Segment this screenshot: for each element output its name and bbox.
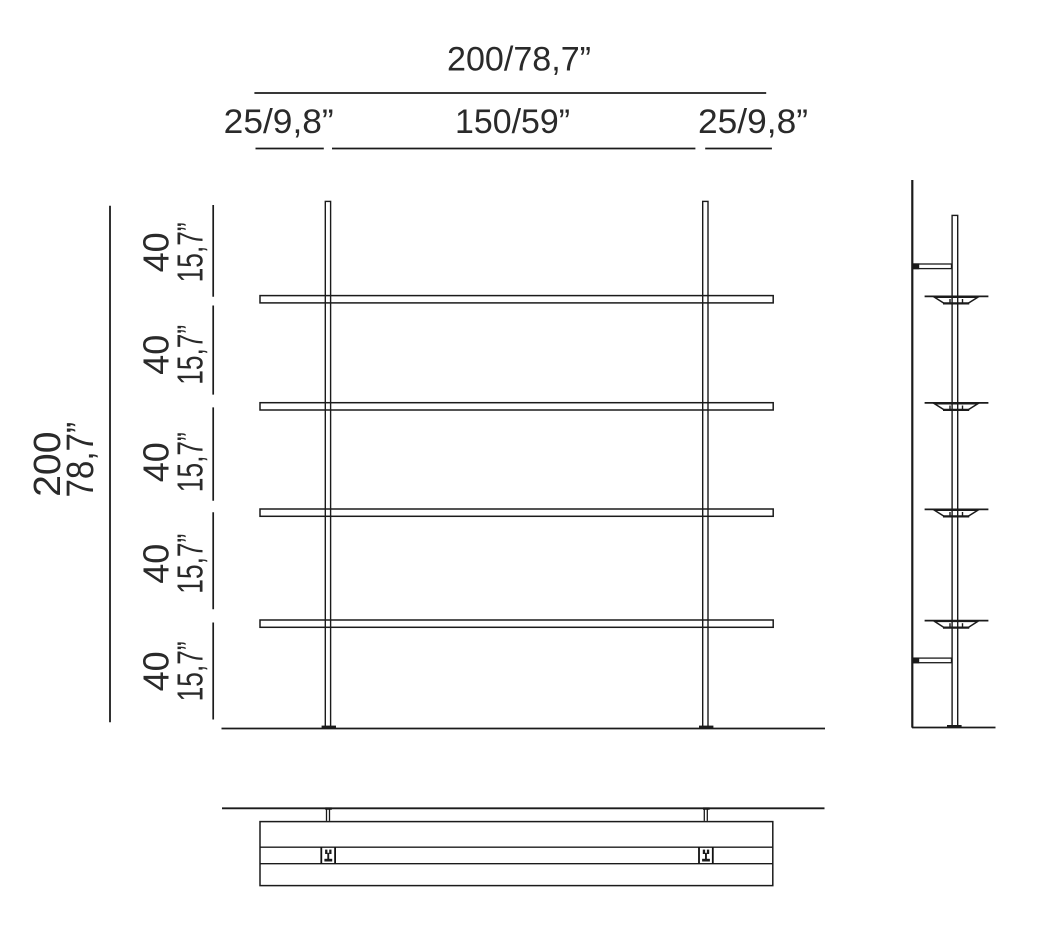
svg-text:15,7”: 15,7” [169,534,210,594]
svg-text:15,7”: 15,7” [169,325,210,385]
svg-text:25/9,8”: 25/9,8” [698,103,808,141]
svg-text:15,7”: 15,7” [169,432,210,492]
svg-text:150/59”: 150/59” [455,103,570,141]
svg-text:15,7”: 15,7” [169,641,210,701]
svg-text:25/9,8”: 25/9,8” [224,103,334,141]
svg-text:200/78,7”: 200/78,7” [447,41,591,79]
svg-text:15,7”: 15,7” [169,222,210,282]
svg-text:78,7”: 78,7” [60,422,102,498]
